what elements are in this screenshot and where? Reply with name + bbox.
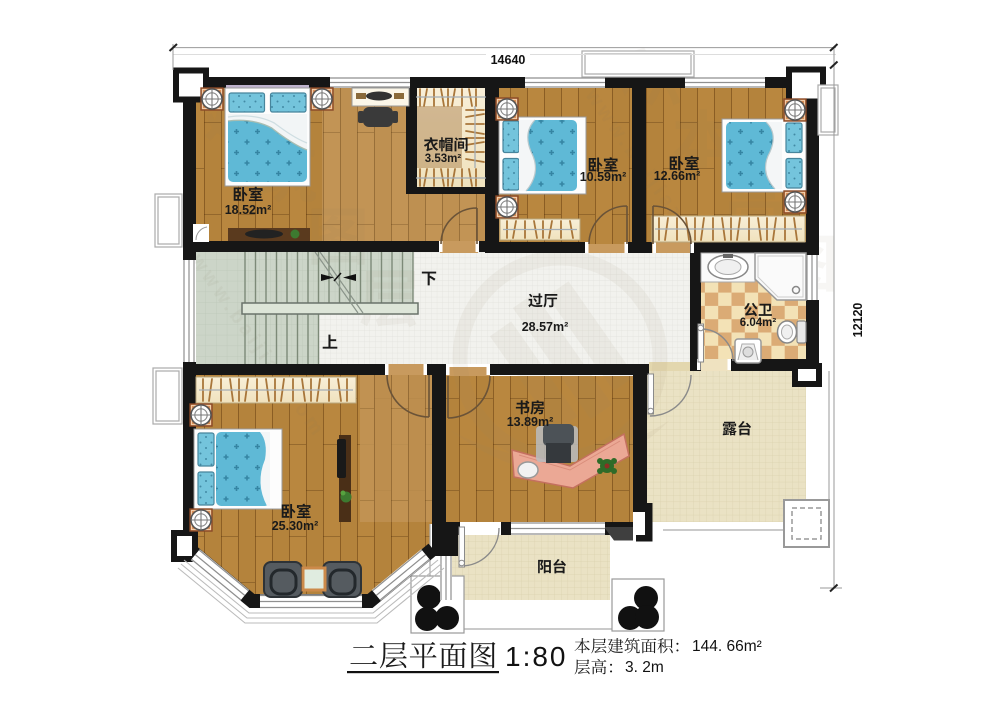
svg-text:12.66m²: 12.66m² xyxy=(654,169,701,183)
svg-text:6.04m²: 6.04m² xyxy=(740,317,777,329)
svg-text:28.57m²: 28.57m² xyxy=(522,320,569,334)
svg-text:1:80: 1:80 xyxy=(505,641,568,672)
svg-text:14640: 14640 xyxy=(491,53,526,67)
svg-text:12120: 12120 xyxy=(851,303,865,338)
svg-text:3. 2m: 3. 2m xyxy=(625,659,664,676)
svg-text:3.53m²: 3.53m² xyxy=(425,153,462,165)
svg-text:10.59m²: 10.59m² xyxy=(580,170,627,184)
svg-text:25.30m²: 25.30m² xyxy=(272,519,319,533)
svg-text:13.89m²: 13.89m² xyxy=(507,415,554,429)
svg-text:18.52m²: 18.52m² xyxy=(225,203,272,217)
svg-text:144. 66m²: 144. 66m² xyxy=(692,638,762,655)
